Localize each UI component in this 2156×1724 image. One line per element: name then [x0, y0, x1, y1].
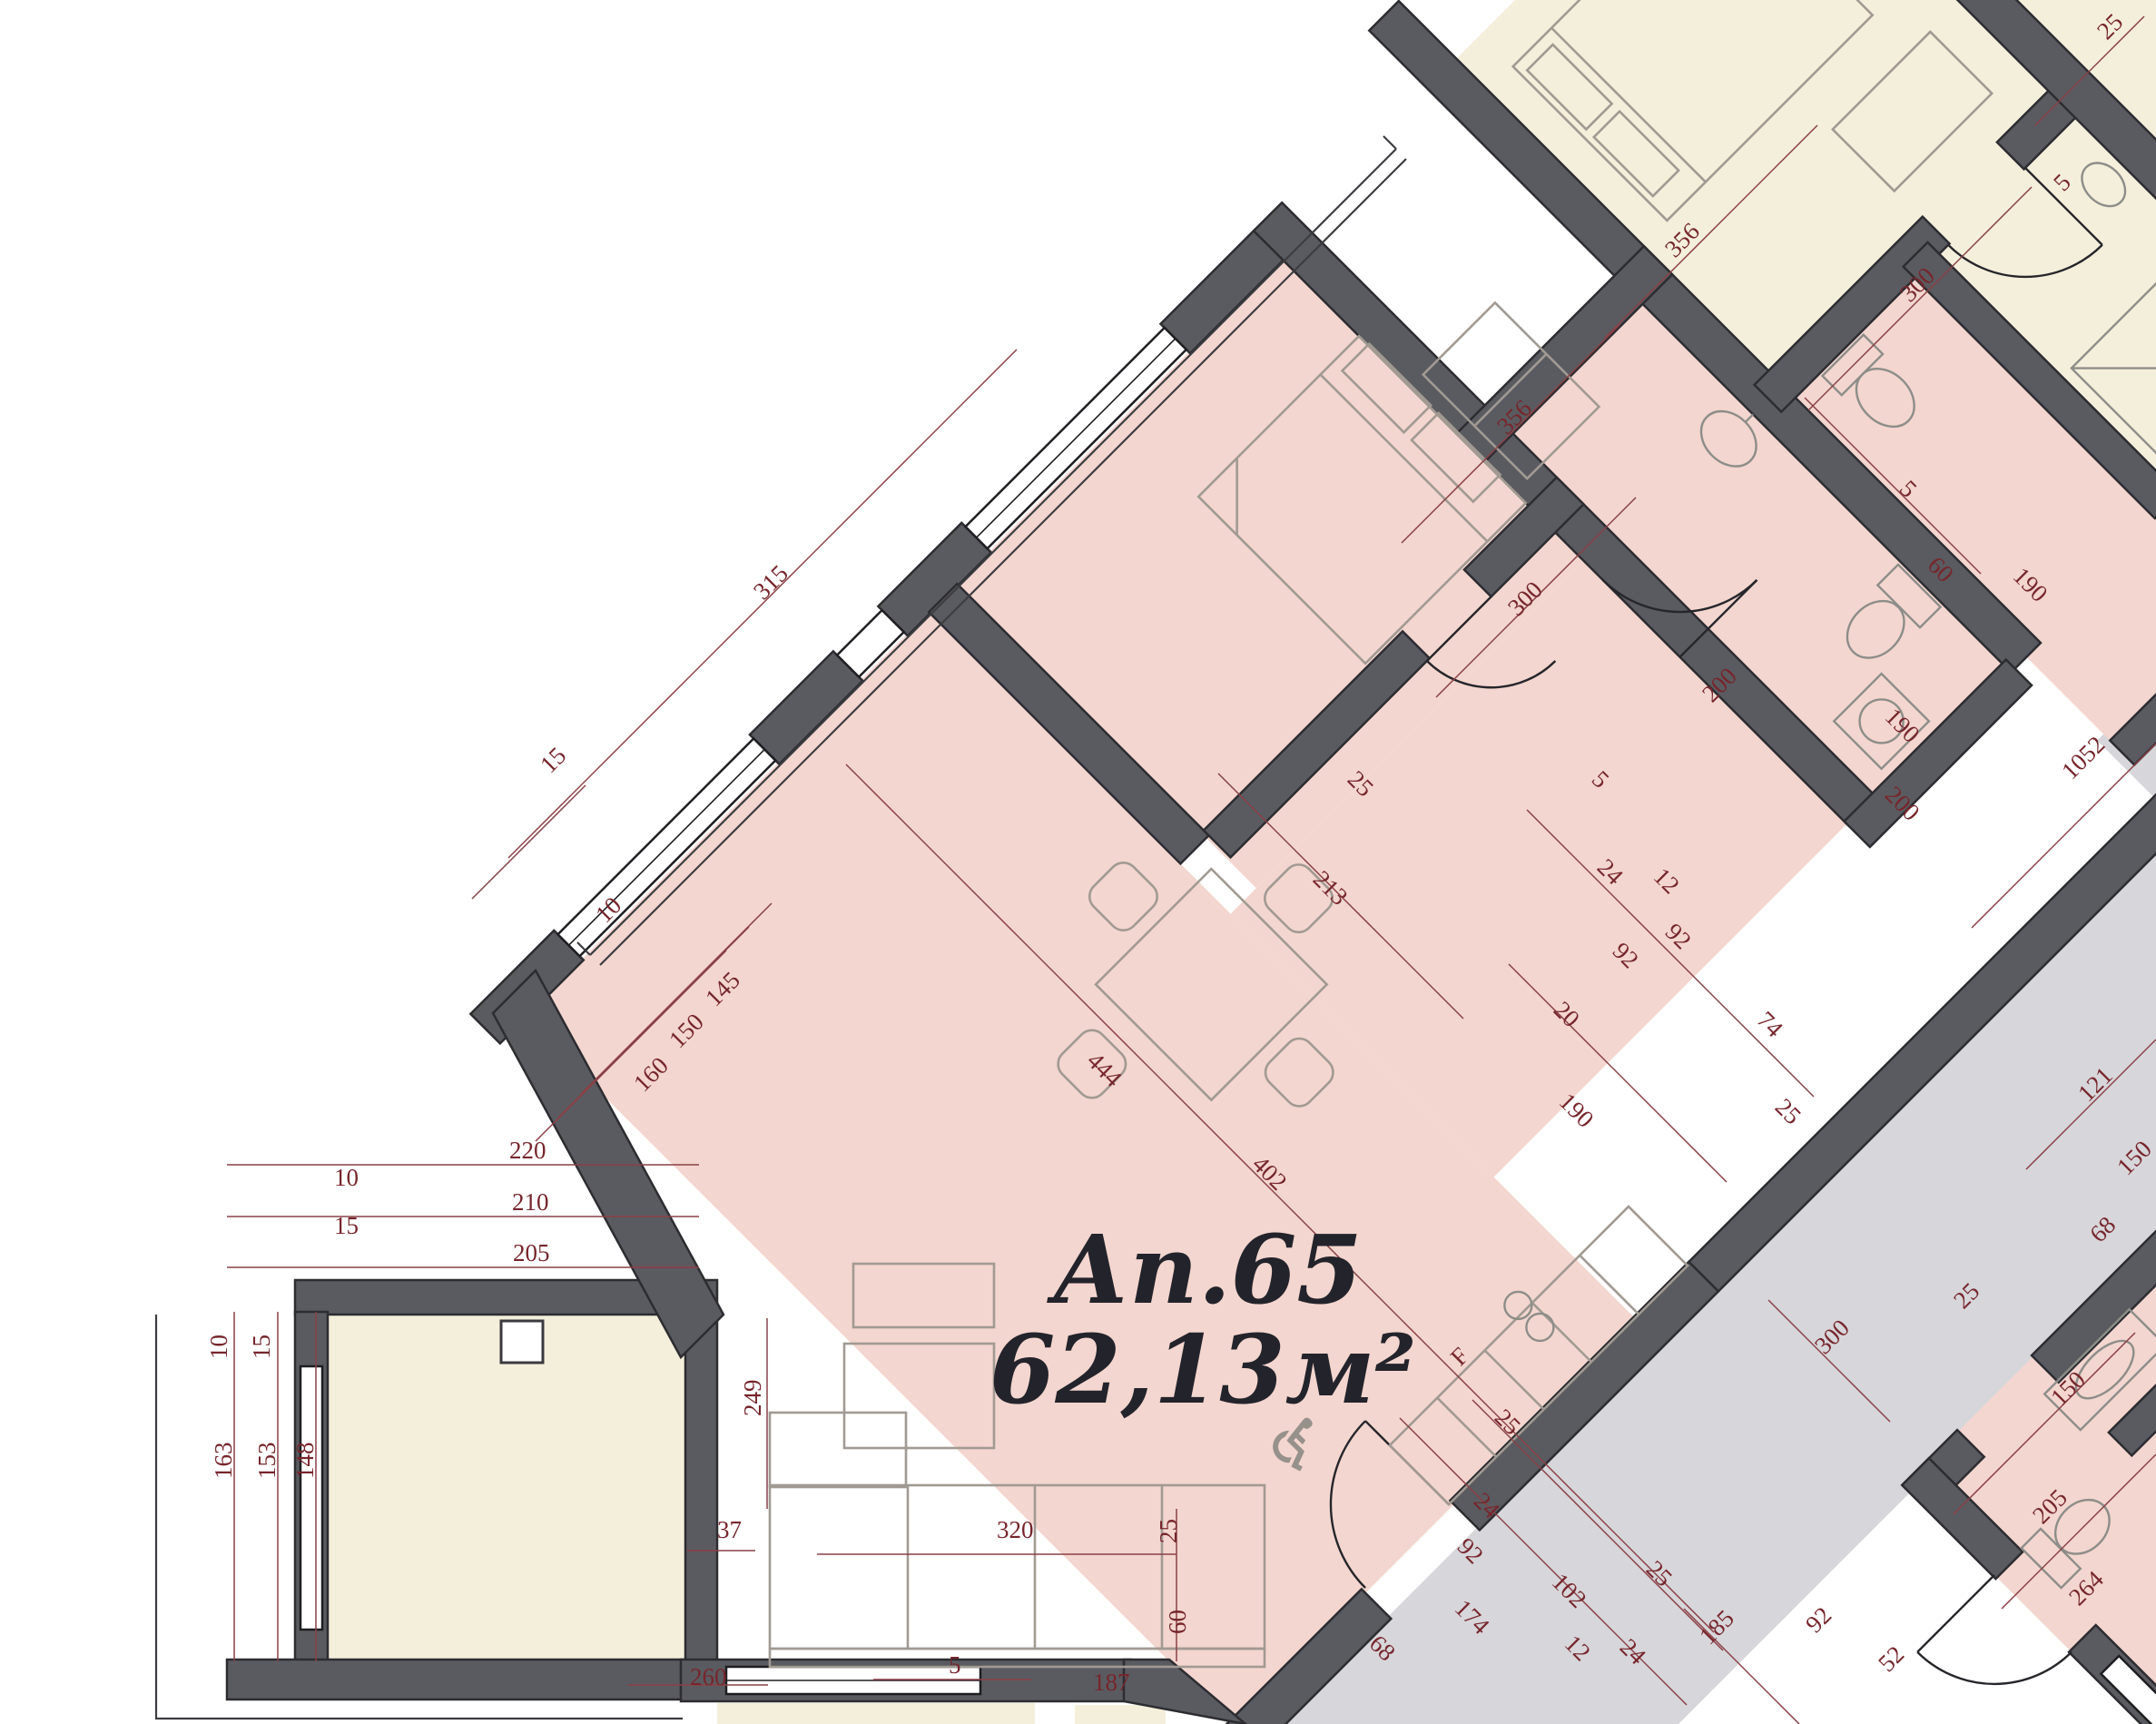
dim-label: 92 — [1800, 1601, 1836, 1638]
dim-label: 249 — [739, 1380, 766, 1417]
dim-label: 10 — [205, 1335, 232, 1359]
floorplan-page: F — [0, 0, 2156, 1724]
dim-label: 220 — [509, 1137, 546, 1164]
room-lower-sliver — [1075, 1705, 1166, 1724]
dim-label: 315 — [748, 559, 793, 605]
dim-label: 260 — [690, 1663, 727, 1690]
dim-label: 37 — [717, 1516, 742, 1543]
dim-label: 153 — [253, 1443, 281, 1480]
dim-label: 25 — [1155, 1519, 1182, 1543]
dim-label: 15 — [248, 1335, 275, 1359]
apartment-area: 62,13м² — [989, 1314, 1416, 1425]
dim-label: 15 — [334, 1212, 359, 1239]
column — [501, 1321, 543, 1363]
dim-label: 163 — [210, 1443, 237, 1480]
floorplan-drawing: F — [0, 0, 2156, 1724]
dim-label: 205 — [513, 1239, 550, 1266]
wall-balcony-south — [227, 1660, 692, 1699]
dim-label: 10 — [334, 1164, 359, 1191]
room-balcony — [327, 1312, 685, 1661]
dim-label: 5 — [949, 1651, 961, 1679]
apartment-number: Ап.65 — [1046, 1214, 1362, 1325]
dim-label: 52 — [1873, 1640, 1909, 1677]
dim-label: 187 — [1093, 1669, 1130, 1696]
dim-label: 320 — [997, 1516, 1034, 1543]
dim-label: 60 — [1164, 1610, 1191, 1634]
dim-label: 15 — [535, 742, 571, 778]
wall-living-west — [685, 1312, 717, 1670]
dim-label: 148 — [291, 1443, 319, 1480]
dim-label: 25 — [1770, 1093, 1807, 1129]
room-lower-sliver — [717, 1703, 1035, 1724]
window-balcony — [300, 1366, 322, 1630]
dim-label: 74 — [1752, 1006, 1789, 1043]
dim-label: 210 — [512, 1188, 549, 1216]
